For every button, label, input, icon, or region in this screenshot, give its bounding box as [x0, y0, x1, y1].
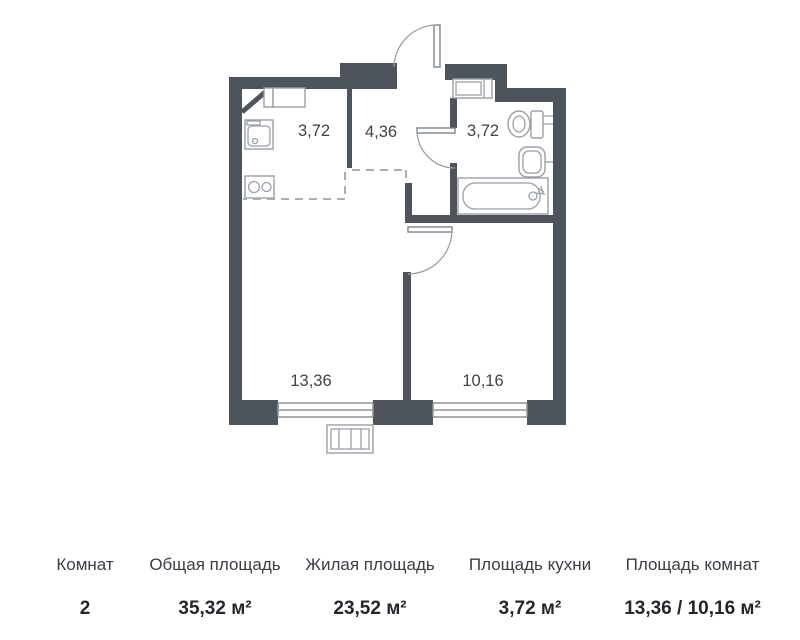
- living-room-area-label: 13,36: [290, 372, 331, 390]
- bedroom-door: [408, 227, 452, 274]
- summary-rooms-label: Комнат: [30, 556, 140, 573]
- summary-room-areas-label: Площадь комнат: [610, 556, 775, 573]
- summary-rooms-value: 2: [30, 599, 140, 619]
- balcony-basket: [327, 425, 373, 453]
- bathroom-sink: [519, 147, 553, 177]
- summary-living-area-value: 23,52 м²: [290, 599, 450, 619]
- summary-col-room-areas: Площадь комнат 13,36 / 10,16 м²: [610, 556, 775, 619]
- bathroom-door: [417, 128, 455, 168]
- summary-col-total-area: Общая площадь 35,32 м²: [140, 556, 290, 619]
- summary-living-area-label: Жилая площадь: [290, 556, 450, 573]
- toilet: [508, 111, 553, 138]
- floor-plan-drawing: 3,72 4,36 3,72 13,36 10,16: [0, 0, 800, 530]
- bathtub: [458, 178, 548, 214]
- summary-col-living-area: Жилая площадь 23,52 м²: [290, 556, 450, 619]
- bathroom-area-label: 3,72: [467, 122, 499, 140]
- kitchen-sink: [245, 120, 273, 149]
- summary-total-area-value: 35,32 м²: [140, 599, 290, 619]
- summary-col-rooms: Комнат 2: [30, 556, 140, 619]
- summary-kitchen-area-label: Площадь кухни: [450, 556, 610, 573]
- kitchen-area-label: 3,72: [298, 122, 330, 140]
- window-left: [278, 400, 373, 425]
- summary-col-kitchen-area: Площадь кухни 3,72 м²: [450, 556, 610, 619]
- stove: [245, 176, 274, 198]
- hallway-area-label: 4,36: [365, 123, 397, 141]
- summary-total-area-label: Общая площадь: [140, 556, 290, 573]
- kitchen-counter: [264, 88, 305, 107]
- summary-room-areas-value: 13,36 / 10,16 м²: [610, 599, 775, 619]
- summary-kitchen-area-value: 3,72 м²: [450, 599, 610, 619]
- bedroom-area-label: 10,16: [462, 372, 503, 390]
- window-right: [433, 400, 527, 425]
- washing-machine: [453, 79, 492, 98]
- entrance-door: [394, 25, 440, 67]
- floor-plan-page: 3,72 4,36 3,72 13,36 10,16 Комнат 2 Обща…: [0, 0, 800, 640]
- summary-table: Комнат 2 Общая площадь 35,32 м² Жилая пл…: [30, 556, 775, 619]
